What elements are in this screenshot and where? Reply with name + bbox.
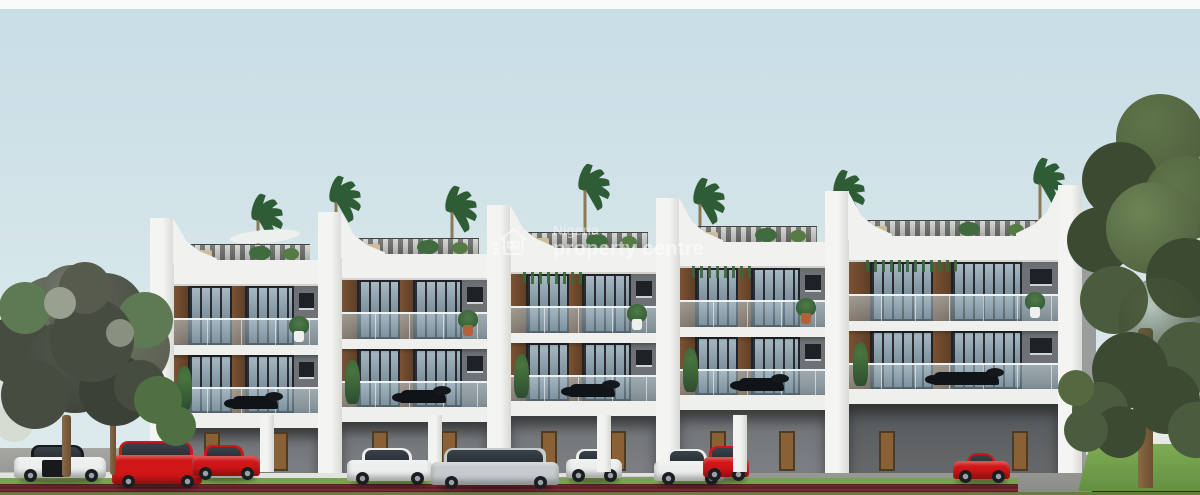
building-unit [174,240,318,473]
sky-strip [0,0,1200,9]
watermark-line1: Nigeria [553,224,704,238]
hanging-vines [692,266,756,278]
floor-slab [340,339,489,349]
small-window [1030,338,1052,355]
carport-door [272,432,288,471]
car-wheel [445,476,458,489]
lower-floor-windows [174,355,318,413]
watermark-text: Nigeria property centre [553,224,704,259]
car-wheel [199,467,212,480]
building-unit [511,228,656,473]
lower-floor-windows [342,349,487,407]
foliage [0,282,51,334]
party-wall-fin [318,212,342,473]
floor-slab [678,327,827,337]
ground-slab [340,407,489,422]
balcony-plant [683,348,698,392]
car-red-SUV [112,441,202,487]
small-window [805,275,820,292]
carport-pillar [260,415,274,472]
small-window [299,362,314,379]
car-wheel [411,472,424,485]
foliage [1,361,69,429]
balcony-furniture [933,372,1000,385]
car-red-coupe [953,451,1010,482]
car-wheel [24,469,37,482]
foliage [1064,408,1108,452]
car-wheel [85,469,98,482]
foliage [44,287,76,319]
upper-floor-windows [174,286,318,345]
lower-floor-windows [511,343,656,401]
upper-floor-windows [342,280,487,339]
carport-door [779,431,795,471]
potted-plant [289,312,309,342]
car-white-sedan [347,448,432,484]
building-unit [342,234,487,473]
hanging-vines [866,260,958,272]
small-window [805,344,820,361]
car-wheel [959,470,972,483]
floor-slab [172,345,320,355]
car-wheel [241,467,254,480]
potted-plant [458,306,478,336]
car-wheel [534,476,547,489]
roof-shrub [249,246,271,260]
building-unit [849,216,1058,473]
watermark: Nigeria property centre [492,224,704,260]
car-wheel [662,472,675,485]
balcony-furniture [569,384,615,397]
carport-pillar [733,415,747,472]
foliage [106,319,134,347]
render-canvas: Nigeria property centre [0,0,1200,495]
ground-slab [678,395,827,410]
car-wheel [572,469,585,482]
potted-plant [796,294,816,324]
car-red-sedan [192,445,260,479]
small-window [636,281,651,298]
ground-slab [847,389,1060,404]
roof-shrub [958,222,980,236]
lower-floor-windows [680,337,825,395]
party-wall-fin [825,191,849,473]
carport-pillar [597,415,611,472]
car-white-sedan [566,449,622,481]
car-wheel [356,472,369,485]
small-window [1030,269,1052,286]
small-window [299,293,314,310]
small-window [636,350,651,367]
floor-slab [509,333,658,343]
balcony-plant [514,354,529,398]
car-silver-estate [431,448,559,488]
foliage [156,406,196,446]
ground-slab [509,401,658,416]
car-wheel [708,468,721,481]
carport-door [879,431,895,471]
foliage [1058,370,1094,406]
balcony-plant [345,360,360,404]
potted-plant [1025,288,1045,318]
carport-door [1012,431,1028,471]
lower-floor-windows [849,331,1058,389]
hanging-vines [523,272,587,284]
balcony-furniture [400,390,446,403]
potted-plant [627,300,647,330]
car-wheel [992,470,1005,483]
balcony-furniture [232,396,278,409]
left-tree-trunk [62,415,71,477]
floor-slab [847,321,1060,331]
left-tree-trunk [110,420,116,475]
balcony-plant [853,342,868,386]
npc-house-logo-icon [492,224,540,260]
small-window [467,287,482,304]
balcony-furniture [738,378,784,391]
small-window [467,356,482,373]
car-wheel [122,475,135,488]
car-black-and-white-sedan [14,445,106,481]
watermark-line2: property centre [553,239,704,260]
